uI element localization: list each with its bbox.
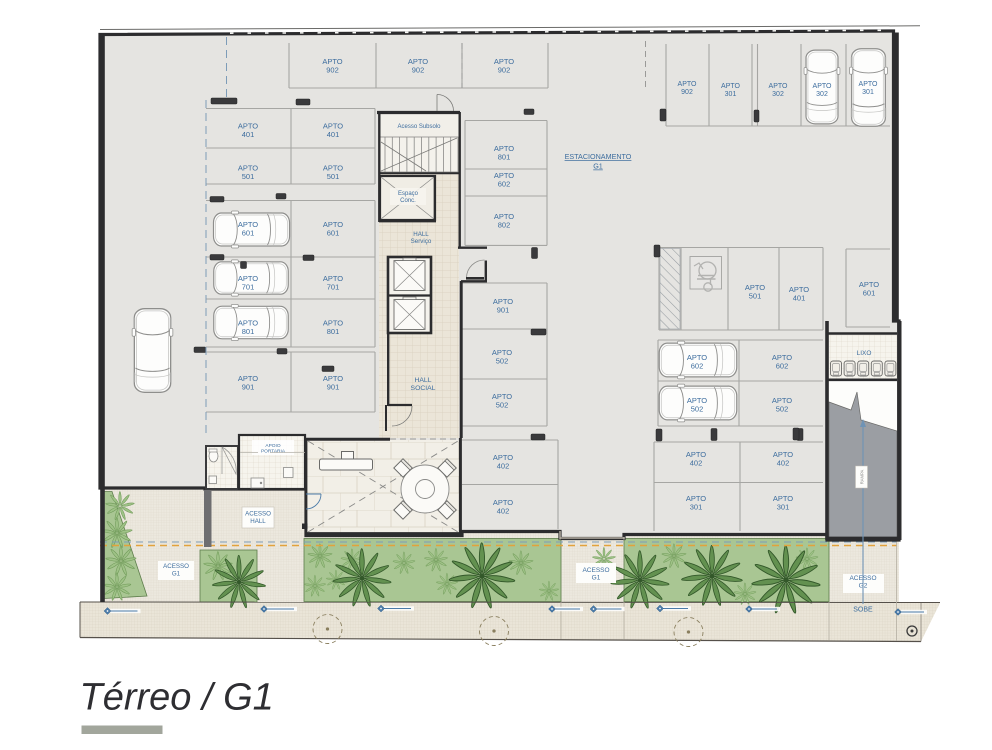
svg-text:HALLServiço: HALLServiço [411,231,432,245]
svg-text:Acesso Subsolo: Acesso Subsolo [397,124,441,130]
svg-text:EspaçoConc.: EspaçoConc. [398,191,419,204]
svg-text:Térreo / G1: Térreo / G1 [80,677,274,719]
svg-text:LIXO: LIXO [857,350,872,357]
svg-text:RAMPA: RAMPA [860,470,865,485]
svg-text:SOBE: SOBE [853,607,873,614]
